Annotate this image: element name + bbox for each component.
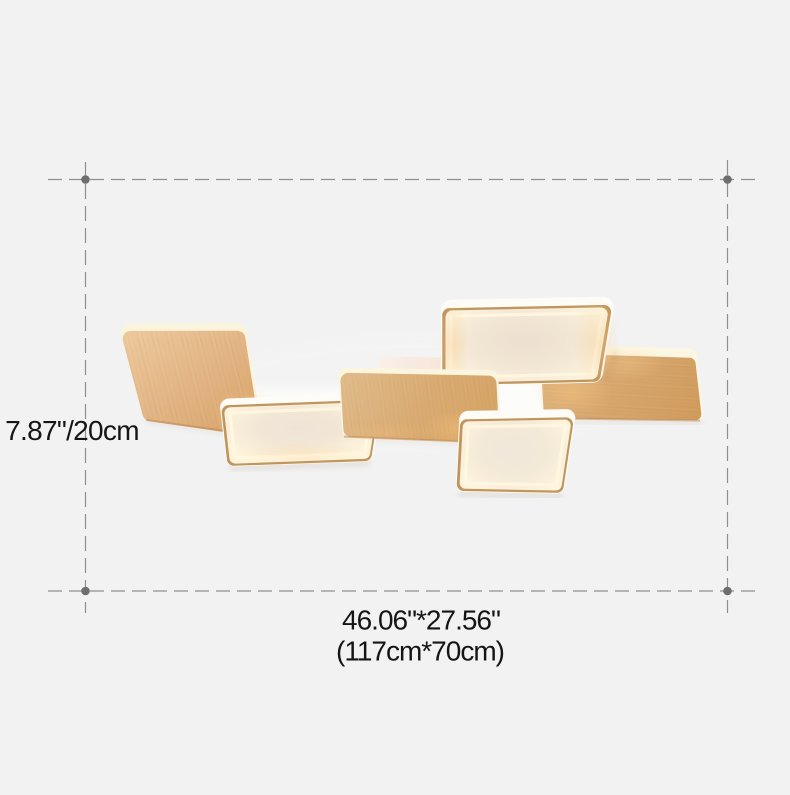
svg-text:46.06"*27.56": 46.06"*27.56" bbox=[342, 605, 500, 636]
svg-text:(117cm*70cm): (117cm*70cm) bbox=[336, 636, 504, 667]
svg-text:7.87"/20cm: 7.87"/20cm bbox=[5, 415, 139, 446]
